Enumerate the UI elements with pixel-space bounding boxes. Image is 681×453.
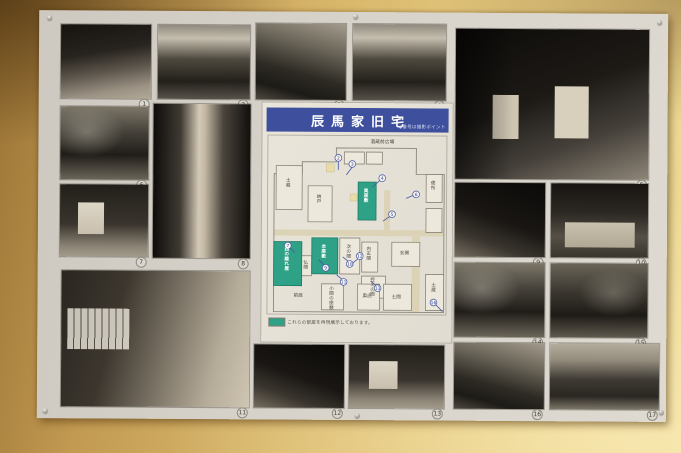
plan-point: 2 (337, 156, 340, 162)
screw-icon (353, 14, 358, 19)
plan-point: 4 (381, 176, 384, 182)
floor-plan-panel: 辰馬家旧宅 ◆番号は撮影ポイント (261, 102, 452, 342)
room-label-honzashiki: 本座敷 (321, 244, 326, 258)
title-banner: 辰馬家旧宅 ◆番号は撮影ポイント (267, 107, 449, 132)
photo-number-badge: 11 (237, 407, 248, 418)
plan-point: 6 (415, 192, 418, 198)
room-label-plaza: 酒蔵前広場 (370, 140, 394, 145)
plan-point: 13 (375, 286, 381, 292)
room-label-okumise: 奥店 (362, 294, 372, 299)
room-label-butsuma: 仏間 (303, 260, 308, 270)
photo-number-badge: 16 (532, 409, 543, 420)
plan-point: 10 (347, 262, 353, 268)
room-label-genkan: 玄関 (400, 251, 410, 256)
screw-icon (43, 408, 48, 413)
room-label-front-garden: 前庭 (293, 294, 303, 299)
photo-garden-path: 6 (60, 106, 148, 180)
photo-corridor: 8 (153, 104, 251, 259)
room-label-koma-zashiki: 小間の座敷 (328, 286, 333, 310)
plan-legend: これらの部屋を再現展示しております。 (269, 318, 443, 326)
screw-icon (657, 20, 662, 25)
screw-icon (355, 413, 360, 418)
room-label-kura-right: 土蔵 (431, 282, 436, 292)
screw-icon (47, 15, 52, 20)
photo-dark-interior: 12 (254, 344, 344, 408)
information-board: 1 2 3 4 5 6 7 8 9 10 11 12 13 (37, 10, 668, 422)
plan-point: 11 (341, 280, 347, 286)
legend-highlight-swatch (269, 318, 284, 325)
room-label-kura-left: 土蔵 (285, 178, 290, 188)
photo-number-badge: 7 (136, 257, 147, 268)
title-note: ◆番号は撮影ポイント (399, 124, 446, 130)
photo-courtyard: 3 (256, 23, 346, 100)
photo-interior-wide: 5 (455, 29, 649, 180)
room-label-doma: 土間 (391, 295, 401, 300)
photo-number-badge: 8 (238, 258, 249, 269)
photo-tatami-room-large: 11 (61, 270, 250, 407)
photo-number-badge: 17 (647, 410, 658, 421)
page-title: 辰馬家旧宅 (304, 110, 411, 130)
floor-plan-svg: 2 3 4 5 6 7 9 10 11 12 13 16 (265, 133, 448, 316)
photo-interior-alcove: 1 (61, 24, 151, 99)
plan-point: 12 (357, 254, 363, 260)
room-label-benjo: 便所 (430, 180, 435, 190)
photo-room-window: 7 (60, 184, 148, 257)
photo-house-exterior: 4 (353, 24, 446, 101)
room-label-nando: 納戸 (316, 194, 321, 204)
wall-photo-scene: 1 2 3 4 5 6 7 8 9 10 11 12 13 (0, 0, 681, 453)
screw-icon (659, 410, 664, 415)
photo-number-badge: 13 (432, 408, 443, 419)
photo-building-exterior: 16 (454, 343, 544, 410)
plan-point: 3 (351, 162, 354, 168)
room-label-uchigenkan: 内玄関 (366, 246, 371, 260)
legend-text: これらの部屋を再現展示しております。 (287, 319, 373, 326)
photo-inner-court: 13 (349, 345, 444, 409)
photo-street-exterior: 17 (550, 343, 659, 410)
photo-roof-beams: 9 (455, 183, 545, 258)
photo-garden-a: 14 (454, 263, 544, 338)
room-label-okuzashiki: 奥座敷 (363, 188, 368, 202)
room-label-nishi-hanare: 西の離れ屋 (284, 247, 289, 271)
photo-garden-b: 15 (550, 263, 647, 338)
photo-number-badge: 12 (332, 408, 343, 419)
room-label-tsuginoma: 次の間 (346, 244, 351, 258)
floor-plan-drawing: 2 3 4 5 6 7 9 10 11 12 13 16 酒 (265, 133, 448, 316)
photo-kitchen-vat: 10 (551, 183, 648, 258)
plan-point: 16 (431, 300, 437, 306)
plan-point: 5 (391, 212, 394, 218)
plan-point: 9 (324, 265, 327, 271)
photo-garden-exterior: 2 (158, 25, 250, 100)
